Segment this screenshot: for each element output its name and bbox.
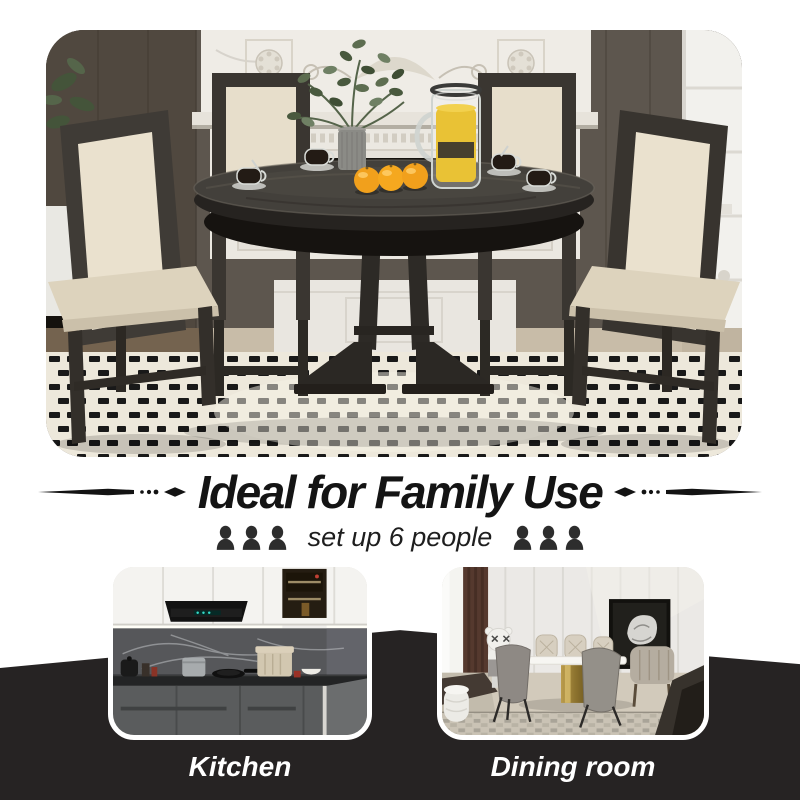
person-bust-icon <box>512 525 533 551</box>
flourish-right-icon <box>612 484 762 500</box>
dining-room-photo <box>437 562 709 740</box>
dining-room-caption: Dining room <box>437 751 709 783</box>
dining-room-scene-illustration <box>442 567 704 735</box>
person-bust-icon <box>241 525 262 551</box>
capacity-label: set up 6 people <box>308 522 493 553</box>
people-icons-left <box>215 525 288 551</box>
product-poster: Ideal for Family Use set up 6 people <box>0 0 800 800</box>
headline: Ideal for Family Use <box>0 467 800 518</box>
kitchen-caption: Kitchen <box>108 751 372 783</box>
kitchen-photo <box>108 562 372 740</box>
kitchen-scene-illustration <box>113 567 367 735</box>
headline-title: Ideal for Family Use <box>198 467 603 518</box>
hero-scene-illustration <box>46 30 742 457</box>
capacity: set up 6 people <box>0 522 800 553</box>
people-icons-right <box>512 525 585 551</box>
flourish-left-icon <box>38 484 188 500</box>
person-bust-icon <box>564 525 585 551</box>
person-bust-icon <box>538 525 559 551</box>
person-bust-icon <box>215 525 236 551</box>
person-bust-icon <box>267 525 288 551</box>
hero-photo <box>46 30 742 457</box>
